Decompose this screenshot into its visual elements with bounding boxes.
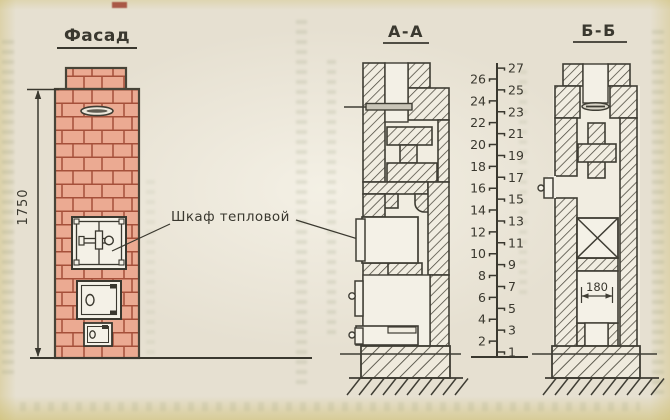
cabinet-callout: Шкаф тепловой — [112, 209, 384, 251]
course-number: 19 — [508, 148, 524, 163]
dimension-arrow-up — [35, 90, 41, 99]
course-number: 4 — [478, 312, 486, 327]
door-hinge — [110, 311, 117, 316]
course-number: 21 — [508, 126, 524, 141]
course-tick — [497, 90, 505, 93]
bb-cleanout-door — [544, 178, 553, 198]
bb-foundation — [552, 346, 640, 378]
thermal-cabinet-door — [72, 217, 126, 269]
bb-right-wall — [620, 118, 637, 347]
course-tick — [490, 166, 498, 169]
facade-view: Фасад — [16, 26, 312, 358]
course-tick — [497, 155, 505, 158]
course-tick — [490, 188, 498, 191]
ground-hatch-tick — [603, 379, 616, 396]
section-aa: А-А — [340, 22, 468, 395]
ground-hatch-tick — [627, 379, 640, 396]
door-bolt — [74, 260, 79, 265]
course-tick — [490, 145, 498, 148]
ground-hatch-tick — [371, 379, 384, 396]
course-scale: 2725232119171513119753126242220181614121… — [470, 61, 528, 360]
ground-hatch-tick — [383, 379, 396, 396]
ground-hatch-tick — [347, 379, 360, 396]
bb-left-wall — [555, 86, 580, 118]
course-tick — [497, 177, 505, 180]
course-number: 27 — [508, 61, 524, 76]
course-number: 13 — [508, 213, 524, 228]
height-dimension: 1750 — [16, 90, 59, 358]
bb-flue-crossing-box — [577, 218, 618, 258]
aa-right-wall — [430, 275, 449, 346]
course-tick — [497, 286, 505, 289]
bb-left-wall — [555, 198, 577, 347]
ground-hatch-tick — [615, 379, 628, 396]
aa-right-wall — [438, 120, 449, 182]
aa-left-wall — [363, 63, 385, 182]
course-number: 18 — [470, 159, 486, 174]
course-tick — [490, 276, 498, 279]
aa-ash-door-knob — [349, 332, 355, 338]
bb-chamber-lintel — [577, 258, 618, 271]
course-tick — [490, 210, 498, 213]
aa-ash-door-leaf — [355, 328, 363, 344]
ground-hatch-tick — [431, 379, 444, 396]
bb-left-wall-top — [563, 64, 583, 86]
ground-hatch-tick — [567, 379, 580, 396]
dimension-arrow-down — [35, 348, 41, 357]
section-aa-title: А-А — [388, 22, 424, 41]
aa-fire-door-knob — [349, 293, 355, 299]
course-tick — [490, 254, 498, 257]
course-number: 6 — [478, 290, 486, 305]
course-tick — [490, 319, 498, 322]
course-tick — [490, 101, 498, 104]
stove-diagram: Фасад — [0, 0, 670, 420]
course-number: 12 — [470, 224, 486, 239]
course-number: 25 — [508, 82, 524, 97]
aa-foundation — [361, 346, 450, 378]
bb-right-wall — [610, 86, 637, 118]
aa-flue-baffle — [400, 145, 417, 163]
ground-hatch-tick — [639, 379, 652, 396]
aa-right-wall-top — [408, 63, 430, 88]
course-number: 2 — [478, 334, 486, 349]
facade-title: Фасад — [64, 26, 130, 46]
ground-hatch-tick — [543, 379, 556, 396]
course-tick — [497, 199, 505, 202]
course-tick — [497, 221, 505, 224]
section-bb-title: Б-Б — [581, 21, 617, 40]
ground-hatch-tick — [651, 379, 664, 396]
course-tick — [497, 265, 505, 268]
scanned-page: Фасад — [0, 0, 670, 420]
course-number: 24 — [470, 93, 486, 108]
ground-hatch-tick — [455, 379, 468, 396]
course-number: 9 — [508, 257, 516, 272]
door-hinge — [102, 325, 108, 329]
ground-hatch-tick — [395, 379, 408, 396]
bb-flue-baffle — [578, 144, 616, 162]
course-number: 20 — [470, 137, 486, 152]
course-number: 14 — [470, 203, 486, 218]
bb-ground-hatch — [543, 379, 664, 396]
course-number: 16 — [470, 181, 486, 196]
aa-chimney-flue — [385, 63, 408, 122]
aa-cabinet-lintel — [363, 182, 428, 194]
ash-door-handle — [90, 331, 95, 338]
fire-door — [77, 281, 121, 319]
ground-hatch-tick — [407, 379, 420, 396]
section-bb: Б-Б — [532, 21, 664, 395]
course-number: 22 — [470, 115, 486, 130]
door-hinge — [110, 284, 117, 289]
course-tick — [490, 232, 498, 235]
aa-flue-baffle — [387, 127, 432, 145]
course-number: 23 — [508, 104, 524, 119]
course-number: 1 — [508, 345, 516, 360]
bb-shaft-wall — [608, 323, 618, 346]
aa-grate-tray — [388, 327, 416, 333]
bb-right-wall-top — [608, 64, 630, 86]
aa-flue-baffle — [387, 163, 437, 182]
bb-lower-chamber — [577, 271, 618, 323]
ground-hatch-tick — [591, 379, 604, 396]
course-tick — [497, 243, 505, 246]
course-number: 11 — [508, 235, 524, 250]
door-bolt — [119, 260, 124, 265]
ground-hatch-tick — [579, 379, 592, 396]
bb-left-wall — [555, 118, 577, 176]
cabinet-callout-label: Шкаф тепловой — [171, 209, 290, 225]
ground-hatch-tick — [359, 379, 372, 396]
course-number: 5 — [508, 301, 516, 316]
bb-cleanout-knob — [538, 185, 544, 191]
aa-right-block — [408, 88, 449, 120]
ground-hatch-tick — [419, 379, 432, 396]
course-tick — [497, 134, 505, 137]
bb-shaft-wall — [577, 323, 585, 346]
aa-thermal-cabinet-cavity — [362, 217, 418, 263]
course-tick — [497, 330, 505, 333]
bb-chimney-flue — [583, 64, 608, 103]
flue-damper-handle — [87, 109, 108, 112]
fire-door-handle — [86, 295, 94, 306]
aa-fire-door-leaf — [355, 281, 363, 316]
height-dimension-label: 1750 — [16, 188, 31, 225]
ash-door — [84, 323, 112, 346]
course-number: 3 — [508, 323, 516, 338]
ground-hatch-tick — [555, 379, 568, 396]
course-tick — [497, 352, 505, 355]
aa-ground-hatch — [347, 379, 468, 396]
bb-shaft — [585, 323, 608, 346]
course-tick — [497, 68, 505, 71]
course-tick — [490, 123, 498, 126]
course-tick — [497, 112, 505, 115]
chimney-cap — [66, 68, 126, 89]
course-number: 26 — [470, 72, 486, 87]
aa-damper-slot — [366, 104, 412, 111]
aa-left-wall — [363, 194, 385, 217]
door-bolt — [74, 219, 79, 224]
door-bolt — [119, 219, 124, 224]
aa-right-wall — [428, 182, 449, 275]
course-number: 17 — [508, 170, 524, 185]
aa-cabinet-door-leaf — [356, 219, 365, 261]
course-number: 10 — [470, 246, 486, 261]
course-tick — [490, 79, 498, 82]
course-number: 15 — [508, 192, 524, 207]
course-tick — [490, 341, 498, 344]
course-number: 7 — [508, 279, 516, 294]
width-dimension-label: 180 — [586, 280, 608, 294]
course-tick — [497, 308, 505, 311]
course-tick — [490, 297, 498, 300]
course-number: 8 — [478, 268, 486, 283]
ground-hatch-tick — [443, 379, 456, 396]
